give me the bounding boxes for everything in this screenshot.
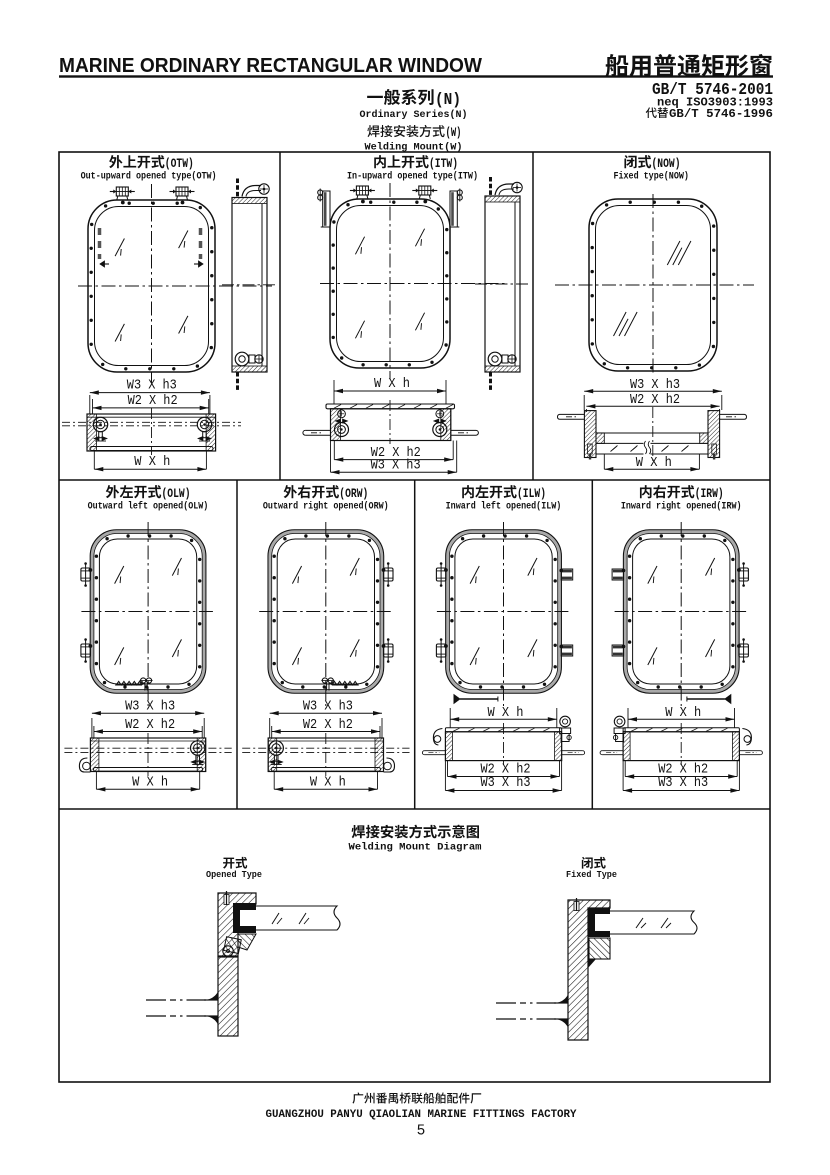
svg-text:W3 X h3: W3 X h3 bbox=[303, 700, 353, 715]
svg-text:Ordinary Series(N): Ordinary Series(N) bbox=[360, 109, 468, 121]
svg-text:W X h: W X h bbox=[132, 776, 168, 791]
svg-text:MARINE ORDINARY RECTANGULAR WI: MARINE ORDINARY RECTANGULAR WINDOW bbox=[59, 54, 483, 77]
svg-text:W X h: W X h bbox=[374, 377, 410, 392]
svg-text:(IRW): (IRW) bbox=[695, 486, 724, 501]
svg-text:W3 X h3: W3 X h3 bbox=[630, 378, 680, 393]
svg-text:W2 X h2: W2 X h2 bbox=[128, 394, 178, 409]
svg-text:(OLW): (OLW) bbox=[162, 486, 191, 501]
svg-text:Inward right opened(IRW): Inward right opened(IRW) bbox=[621, 501, 742, 513]
svg-text:In-upward opened type(ITW): In-upward opened type(ITW) bbox=[347, 171, 478, 183]
svg-text:W3 X h3: W3 X h3 bbox=[658, 776, 708, 791]
svg-text:Outward right opened(ORW): Outward right opened(ORW) bbox=[263, 501, 389, 513]
svg-text:Fixed type(NOW): Fixed type(NOW) bbox=[613, 171, 689, 183]
svg-text:(ITW): (ITW) bbox=[429, 156, 458, 171]
svg-text:W2 X h2: W2 X h2 bbox=[125, 718, 175, 733]
svg-text:W3 X h3: W3 X h3 bbox=[125, 700, 175, 715]
svg-text:W3 X h3: W3 X h3 bbox=[481, 776, 531, 791]
svg-text:W2 X h2: W2 X h2 bbox=[303, 718, 353, 733]
svg-text:W3 X h3: W3 X h3 bbox=[371, 458, 421, 473]
svg-text:W X h: W X h bbox=[636, 456, 672, 471]
svg-text:(NOW): (NOW) bbox=[652, 156, 681, 171]
svg-text:Inward left opened(ILW): Inward left opened(ILW) bbox=[446, 501, 562, 513]
svg-text:W2 X h2: W2 X h2 bbox=[630, 393, 680, 408]
svg-text:Welding Mount Diagram: Welding Mount Diagram bbox=[349, 842, 482, 854]
svg-text:Fixed Type: Fixed Type bbox=[566, 870, 617, 880]
svg-text:W X h: W X h bbox=[310, 776, 346, 791]
svg-text:(W): (W) bbox=[446, 126, 462, 140]
svg-text:W X h: W X h bbox=[488, 706, 524, 721]
svg-text:W X h: W X h bbox=[665, 706, 701, 721]
svg-text:5: 5 bbox=[417, 1124, 426, 1140]
svg-text:GB/T 5746-1996: GB/T 5746-1996 bbox=[669, 107, 773, 121]
svg-text:GUANGZHOU PANYU QIAOLIAN MARIN: GUANGZHOU PANYU QIAOLIAN MARINE FITTINGS… bbox=[266, 1109, 577, 1121]
svg-text:(OTW): (OTW) bbox=[165, 156, 194, 171]
svg-text:W X h: W X h bbox=[134, 455, 170, 470]
svg-text:(ILW): (ILW) bbox=[517, 486, 546, 501]
svg-text:W3 X h3: W3 X h3 bbox=[127, 379, 177, 394]
svg-text:(N): (N) bbox=[435, 91, 461, 110]
svg-text:Outward left opened(OLW): Outward left opened(OLW) bbox=[88, 501, 209, 513]
svg-text:(ORW): (ORW) bbox=[339, 486, 368, 501]
svg-text:Opened Type: Opened Type bbox=[206, 870, 262, 880]
svg-text:Out-upward opened type(OTW): Out-upward opened type(OTW) bbox=[81, 171, 217, 183]
